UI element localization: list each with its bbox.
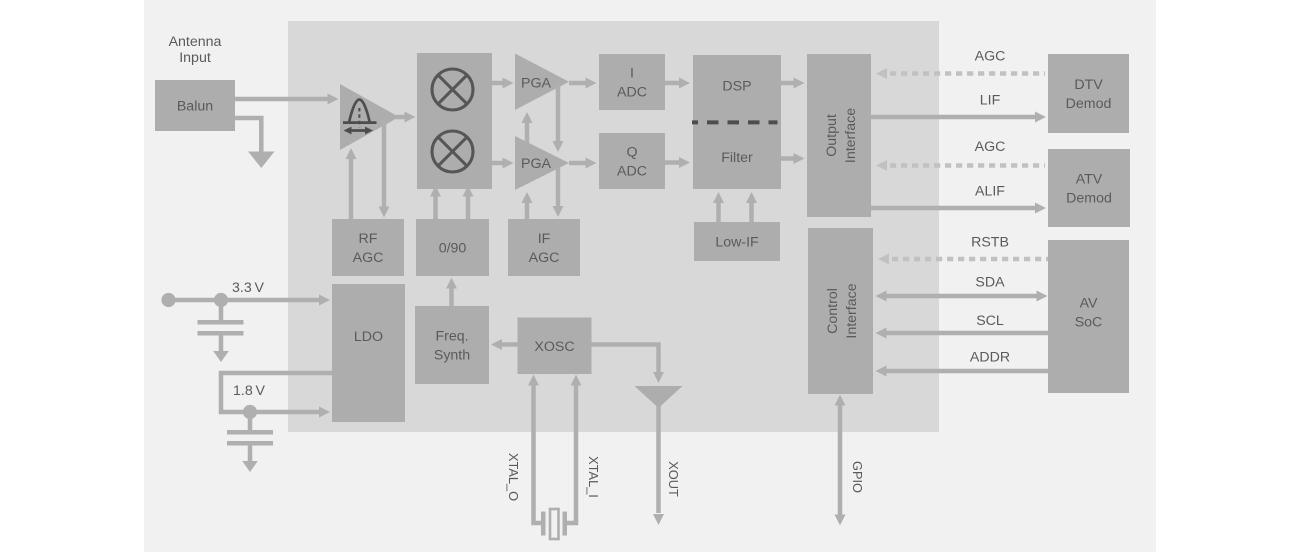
svg-text:3.3 V: 3.3 V [232,280,265,296]
svg-text:XOSC: XOSC [534,339,574,355]
svg-text:Input: Input [179,50,211,66]
svg-text:Control: Control [825,288,841,334]
svg-text:XOUT: XOUT [666,461,681,497]
svg-text:RSTB: RSTB [971,235,1009,251]
svg-text:Demod: Demod [1066,191,1112,207]
svg-text:SCL: SCL [976,313,1004,329]
svg-text:DTV: DTV [1074,77,1103,93]
svg-text:Q: Q [626,145,637,161]
svg-text:LDO: LDO [354,329,383,345]
svg-text:IF: IF [538,231,551,247]
svg-text:AV: AV [1080,296,1098,312]
svg-text:Freq.: Freq. [435,329,468,345]
svg-text:Low-IF: Low-IF [715,235,759,251]
svg-text:AGC: AGC [353,250,384,266]
svg-text:SDA: SDA [975,275,1005,291]
svg-text:PGA: PGA [521,76,551,92]
svg-text:AGC: AGC [529,250,560,266]
svg-text:AGC: AGC [975,139,1006,155]
svg-text:Demod: Demod [1066,96,1112,112]
svg-text:PGA: PGA [521,156,551,172]
svg-text:Antenna: Antenna [169,34,222,50]
svg-text:XTAL_O: XTAL_O [506,453,521,501]
svg-text:XTAL_I: XTAL_I [586,456,601,498]
svg-text:ADC: ADC [617,85,647,101]
svg-text:ATV: ATV [1076,172,1103,188]
svg-text:ALIF: ALIF [975,184,1005,200]
svg-text:ADC: ADC [617,164,647,180]
svg-text:Interface: Interface [844,283,860,338]
svg-text:Balun: Balun [177,99,213,115]
svg-text:1.8 V: 1.8 V [233,383,266,399]
svg-text:DSP: DSP [722,79,751,95]
svg-text:SoC: SoC [1075,315,1103,331]
svg-text:Synth: Synth [434,348,470,364]
svg-text:I: I [630,66,634,82]
svg-text:0/90: 0/90 [439,241,467,257]
svg-text:Interface: Interface [843,108,859,163]
svg-text:AGC: AGC [975,49,1006,65]
svg-text:RF: RF [359,231,378,247]
svg-text:Output: Output [824,114,840,157]
svg-text:Filter: Filter [721,150,753,166]
svg-text:GPIO: GPIO [850,461,865,493]
svg-text:LIF: LIF [980,93,1001,109]
svg-text:ADDR: ADDR [970,350,1010,366]
